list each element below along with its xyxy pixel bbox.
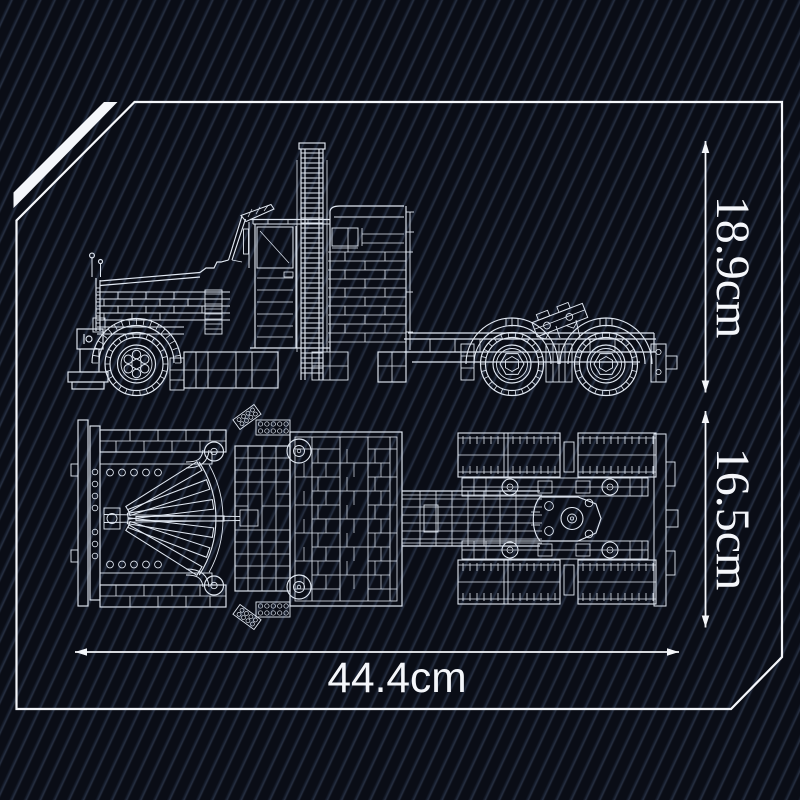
svg-text:18.9cm: 18.9cm — [706, 196, 759, 339]
svg-text:16.5cm: 16.5cm — [706, 448, 759, 591]
svg-text:44.4cm: 44.4cm — [327, 655, 466, 702]
